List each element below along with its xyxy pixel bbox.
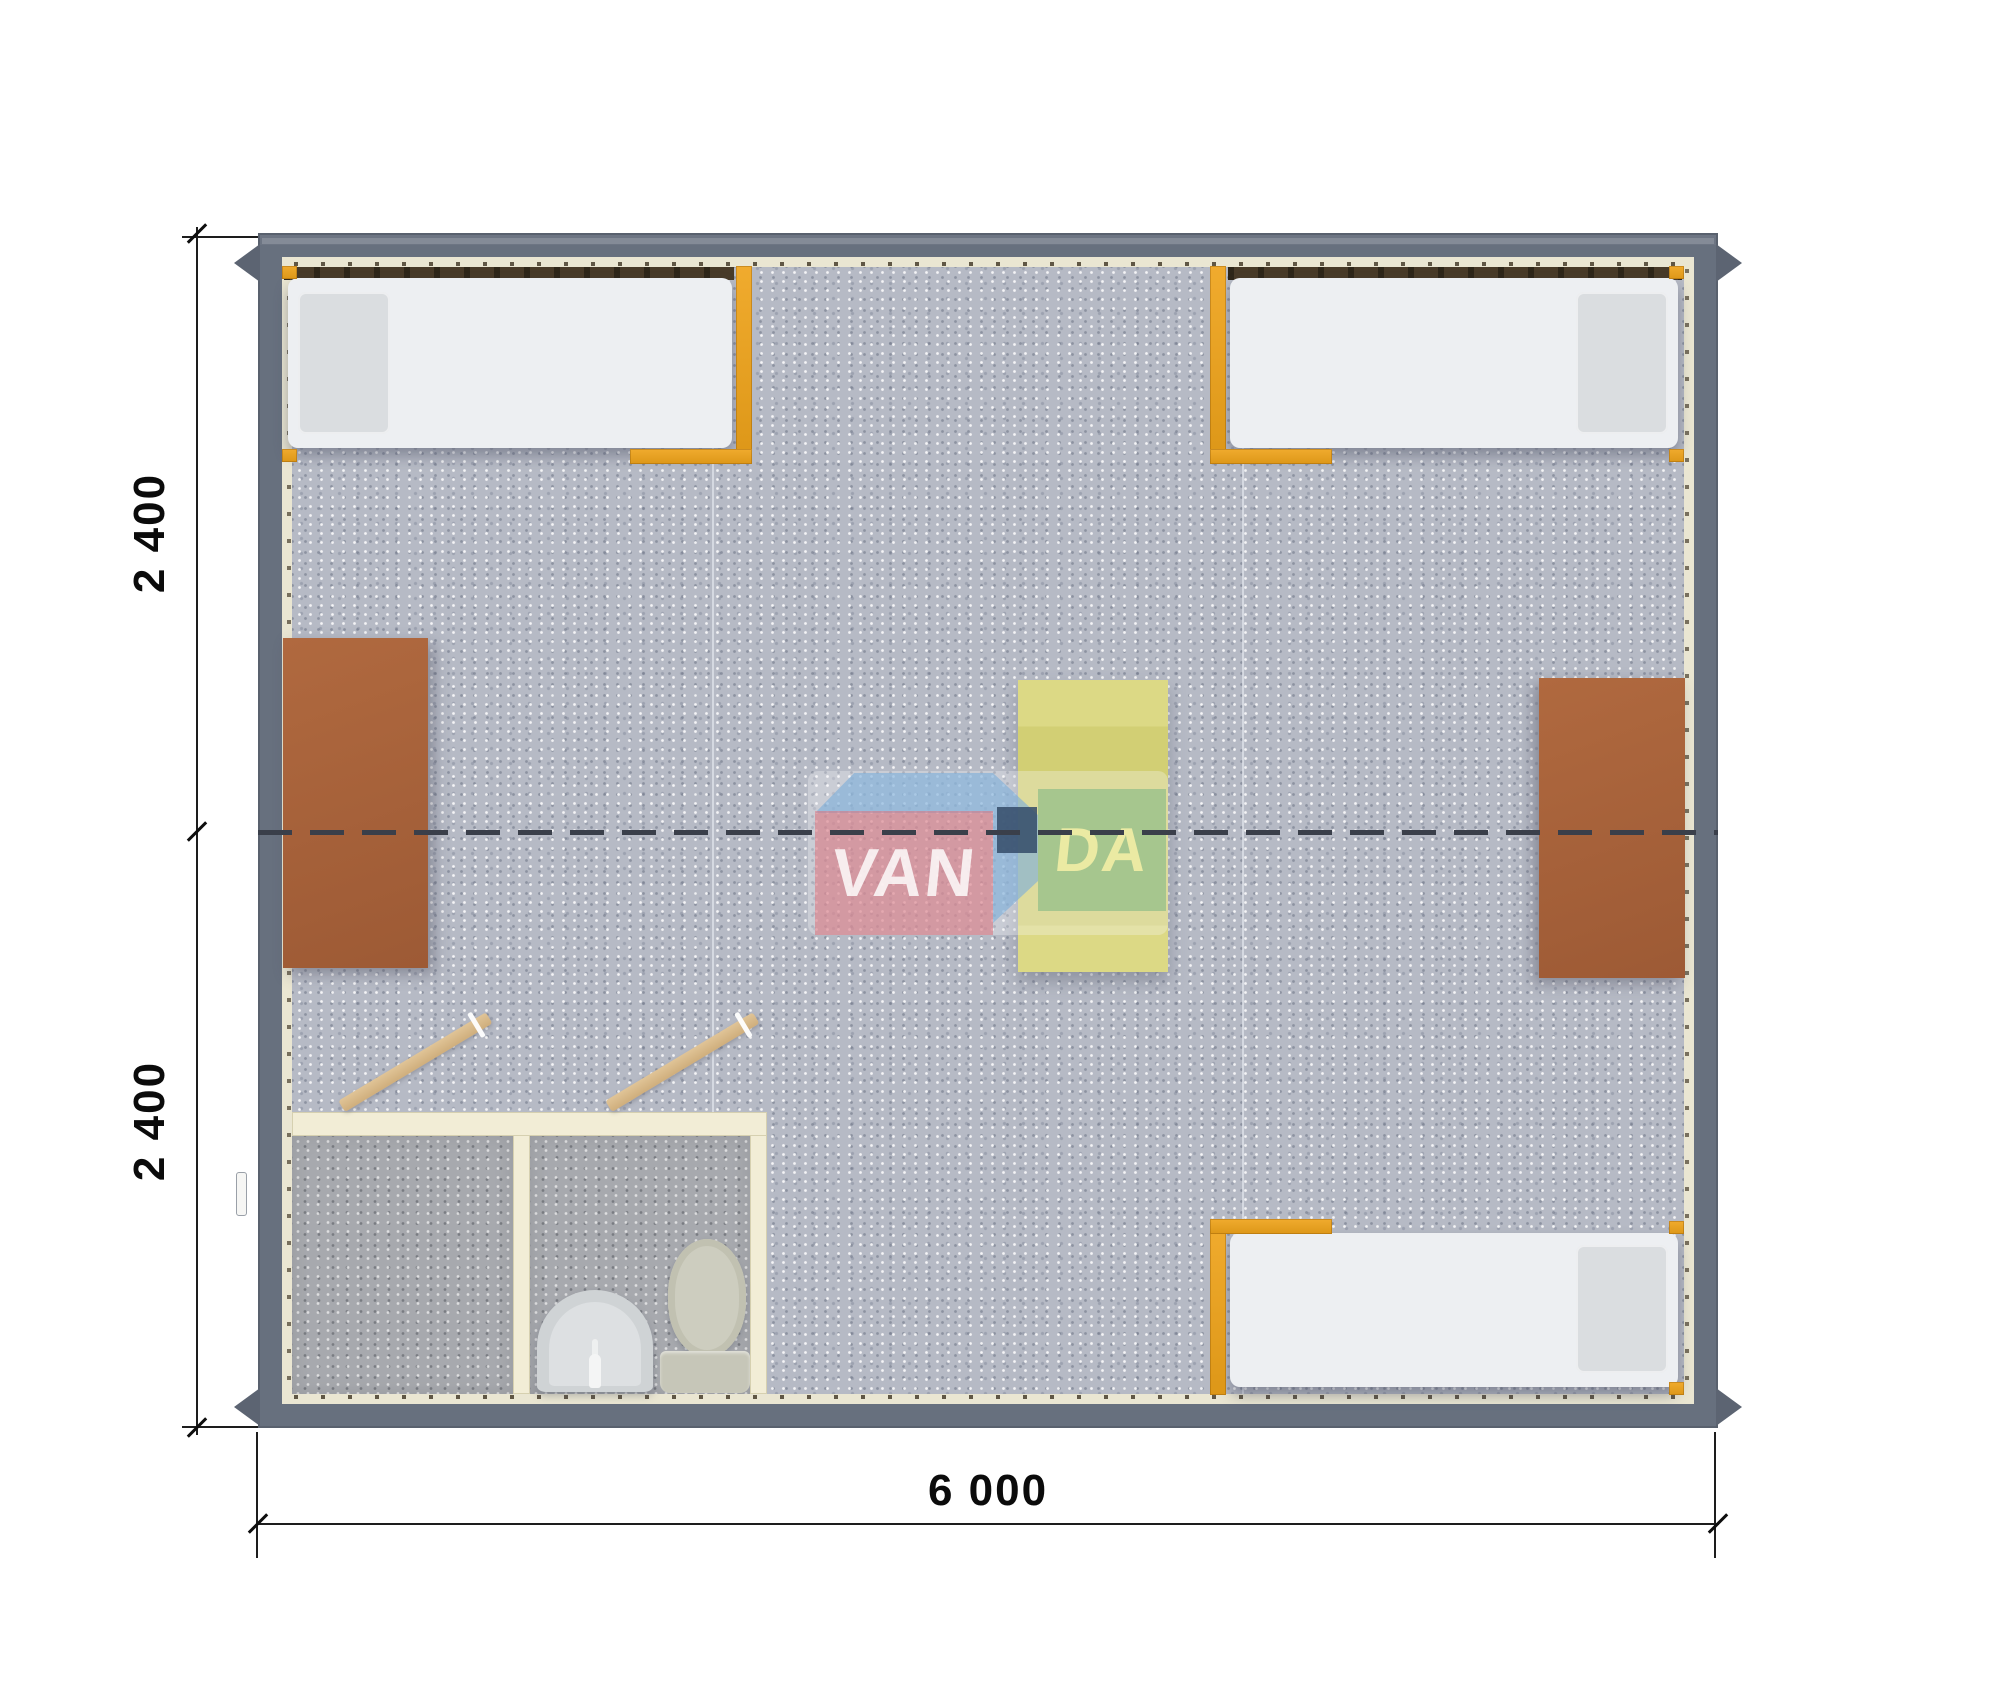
- bed-top-left: [282, 266, 752, 460]
- bed-frame-corner: [282, 266, 297, 279]
- faucet-icon: [589, 1354, 601, 1388]
- dimension-label-upper: 2 400: [125, 413, 175, 653]
- building-outer-wall: VAN DA: [258, 233, 1718, 1428]
- bed-frame-side: [1210, 1225, 1226, 1395]
- bathroom-partition-wall: [750, 1135, 767, 1394]
- dimension-ext-left: [256, 1432, 258, 1558]
- corner-post-bottom-right: [1716, 1388, 1742, 1426]
- bed-top-right: [1210, 266, 1684, 460]
- bed-frame-foot: [1210, 449, 1332, 464]
- watermark-box-da: DA: [1038, 789, 1166, 911]
- entrance-door-handle-icon: [236, 1172, 247, 1216]
- bed-frame-corner: [1669, 449, 1684, 462]
- bed-pillow: [1576, 292, 1668, 434]
- wall-top-highlight: [262, 238, 1714, 244]
- dimension-label-width: 6 000: [868, 1466, 1108, 1516]
- shower-room-floor: [292, 1135, 513, 1394]
- wall-exterior-joints-left: [246, 244, 256, 1424]
- bathroom-partition-wall: [513, 1135, 530, 1394]
- bed-frame-foot: [630, 449, 752, 464]
- bed-pillow: [298, 292, 390, 434]
- bed-pillow: [1576, 1245, 1668, 1373]
- wall-liner-joints-bottom: [294, 1395, 1682, 1399]
- bed-bottom-right: [1210, 1223, 1684, 1395]
- bed-frame-corner: [1669, 266, 1684, 279]
- desk-left-wall: [283, 638, 428, 968]
- bed-frame-corner: [1669, 1221, 1684, 1234]
- dimension-ext-right: [1714, 1432, 1716, 1558]
- bed-frame-side: [736, 266, 752, 458]
- bed-frame-head: [1210, 1219, 1332, 1234]
- corner-post-top-right: [1716, 244, 1742, 282]
- dimension-bottom-line: [257, 1523, 1719, 1525]
- toilet-lid: [668, 1239, 746, 1357]
- sink: [537, 1290, 653, 1392]
- bed-frame-side: [1210, 266, 1226, 458]
- floor-plan-canvas: 2 400 2 400 6 000: [0, 0, 2000, 1701]
- bed-frame-corner: [282, 449, 297, 462]
- desk-right-wall: [1539, 678, 1685, 978]
- module-split-dashed-line: [258, 830, 1718, 835]
- bathroom-partition-wall: [292, 1112, 767, 1136]
- watermark-text-da: DA: [1032, 789, 1173, 911]
- toilet-base: [660, 1351, 750, 1393]
- dimension-label-lower: 2 400: [125, 1001, 175, 1241]
- bed-frame-corner: [1669, 1382, 1684, 1395]
